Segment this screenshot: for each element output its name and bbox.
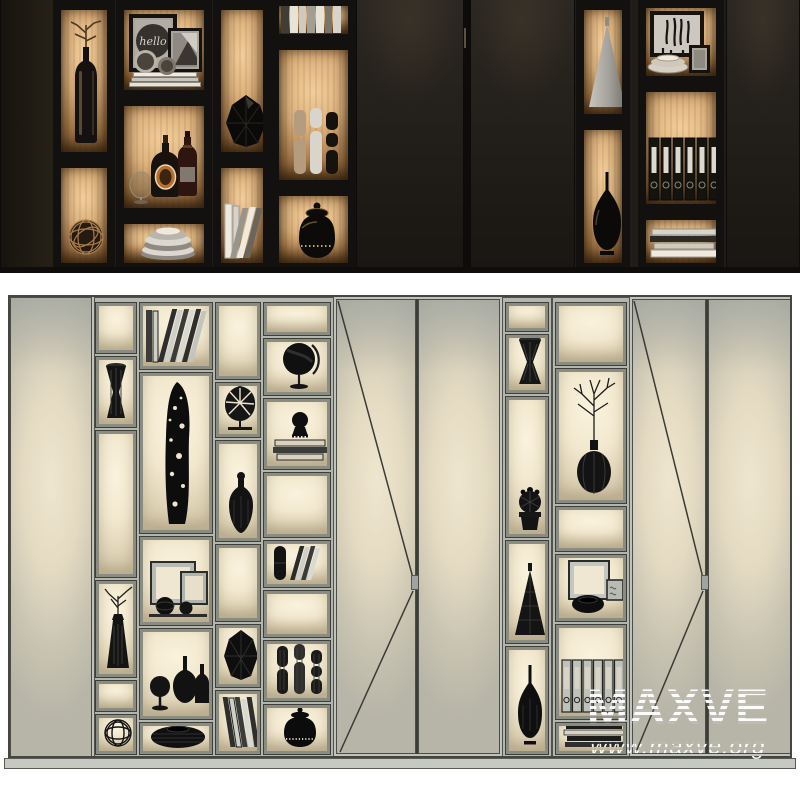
- branch-in-round-vase: [562, 372, 626, 498]
- striped-plate-stack: [135, 223, 201, 261]
- clay-niche-empty: [556, 303, 626, 365]
- niche-black-jar: [275, 192, 352, 267]
- door-handle: [464, 28, 466, 48]
- small-photo-frame: [689, 45, 710, 73]
- woven-sphere: [102, 717, 134, 749]
- clay-door-left: [10, 297, 92, 758]
- round-ornament: [158, 57, 176, 75]
- clay-niche-sculpture: [140, 373, 212, 533]
- clay-niche-striped-hourglass: [506, 335, 548, 393]
- round-ornament: [134, 50, 157, 73]
- niche-branch-bottle: [57, 6, 111, 156]
- product-showcase-image: hello: [0, 0, 800, 800]
- niche-liquor: [120, 102, 208, 212]
- leaning-books: [223, 198, 267, 260]
- faceted-black-vase: [224, 93, 267, 149]
- niche-teardrop-vase: [580, 126, 626, 267]
- clay-niche-empty: [556, 507, 626, 551]
- niche-faceted-vase: [217, 6, 267, 156]
- clay-niche-empty: [96, 303, 136, 353]
- niche-hello-frames: hello: [120, 6, 208, 94]
- clay-niche-binders: [556, 625, 626, 719]
- binders: [561, 658, 625, 714]
- frame-and-oval-bowl: [561, 558, 625, 616]
- leaning-books: [221, 693, 259, 749]
- book-stack: [562, 723, 626, 749]
- faceted-vase: [222, 628, 260, 682]
- teardrop-black-vase: [589, 170, 625, 260]
- cabinet-plinth: [4, 758, 796, 769]
- clay-niche-frame-bowl: [556, 555, 626, 621]
- pill-vase-with-books: [271, 542, 327, 582]
- branch-vase: [102, 584, 134, 672]
- cabinet-base-edge: [0, 267, 800, 273]
- clay-niche-monstera: [216, 383, 260, 437]
- clay-niche-bowl: [140, 723, 212, 754]
- hourglass-vase: [103, 362, 129, 422]
- hello-print-text: hello: [139, 35, 166, 48]
- book-stack: [648, 227, 720, 261]
- clay-niche-empty: [216, 303, 260, 379]
- clay-niche-books: [140, 303, 212, 369]
- metal-cone: [587, 15, 626, 111]
- cylinder-vases: [293, 108, 339, 176]
- monstera-leaf-decor: [221, 384, 259, 432]
- liquor-bottles-and-glass: [128, 125, 206, 205]
- clay-niche-empty: [264, 473, 330, 537]
- branch-in-bottle-vase: [64, 17, 108, 149]
- picture-frames-with-spheres: [145, 558, 211, 620]
- bottles-and-glass: [145, 652, 211, 714]
- clay-niche-empty: [506, 303, 548, 331]
- clay-niche-books: [216, 691, 260, 754]
- clay-niche-branch-vase: [96, 581, 136, 677]
- clay-niche-bust-books: [264, 399, 330, 469]
- niche-cone: [580, 6, 626, 118]
- clay-niche-cylinders: [264, 641, 330, 701]
- cabinet-door-left: [0, 0, 56, 273]
- clay-niche-empty: [264, 303, 330, 335]
- striped-hourglass-vase: [515, 336, 545, 388]
- cylinder-vases: [275, 642, 325, 696]
- clay-niche-teardrop: [506, 647, 548, 754]
- cactus-pot: [513, 482, 547, 532]
- cone-vase: [513, 562, 547, 638]
- clay-niche-faceted: [216, 625, 260, 687]
- bust-on-books: [271, 408, 329, 464]
- door-swing-mark: [632, 299, 706, 754]
- niche-zebra-art: [642, 4, 720, 80]
- clay-door: [418, 299, 500, 754]
- clay-niche-empty: [96, 431, 136, 577]
- clay-niche-frames-spheres: [140, 537, 212, 625]
- clay-niche-cactus: [506, 397, 548, 537]
- photo-render-dark-shelving: hello: [0, 0, 800, 273]
- niche-book-stack: [642, 216, 720, 267]
- cabinet-door: [470, 0, 575, 273]
- clay-niche-branch-round-vase: [556, 369, 626, 503]
- cabinet-door-right: [726, 0, 800, 273]
- clay-niche-cone: [506, 541, 548, 643]
- book-row: [281, 3, 346, 33]
- woven-metal-sphere: [65, 216, 107, 258]
- clay-door: [708, 299, 792, 754]
- clay-niche-empty: [216, 545, 260, 621]
- teardrop-vase: [515, 663, 545, 749]
- clay-niche-empty: [96, 681, 136, 711]
- clay-niche-pill-books: [264, 541, 330, 587]
- niche-cylinder-vases: [275, 46, 352, 184]
- black-ginger-jar: [296, 198, 338, 260]
- bottle-silhouette: [227, 470, 255, 536]
- clay-niche-hourglass: [96, 357, 136, 427]
- clay-niche-books: [556, 723, 626, 754]
- ceramic-bowl-stack: [647, 50, 689, 74]
- niche-book-row: [275, 2, 352, 38]
- door-swing-mark: [336, 299, 416, 754]
- clay-niche-empty: [264, 591, 330, 637]
- clay-niche-sphere: [96, 715, 136, 754]
- perforated-sculpture: [157, 378, 197, 528]
- black-binders: [648, 135, 720, 201]
- niche-plate-stack: [120, 220, 208, 267]
- clay-niche-jar: [264, 705, 330, 754]
- cabinet-door: [356, 0, 464, 273]
- clay-niche-bottle: [216, 441, 260, 541]
- niche-woven-sphere: [57, 164, 111, 267]
- clay-render-shelving: [8, 295, 792, 758]
- clay-niche-bottles: [140, 629, 212, 719]
- desk-globe: [275, 340, 323, 390]
- ribbed-bowl: [149, 724, 207, 749]
- leaning-books: [145, 306, 211, 364]
- niche-binders: [642, 88, 720, 208]
- lidded-jar: [278, 706, 322, 749]
- niche-leaning-books: [217, 164, 267, 267]
- clay-niche-globe: [264, 339, 330, 395]
